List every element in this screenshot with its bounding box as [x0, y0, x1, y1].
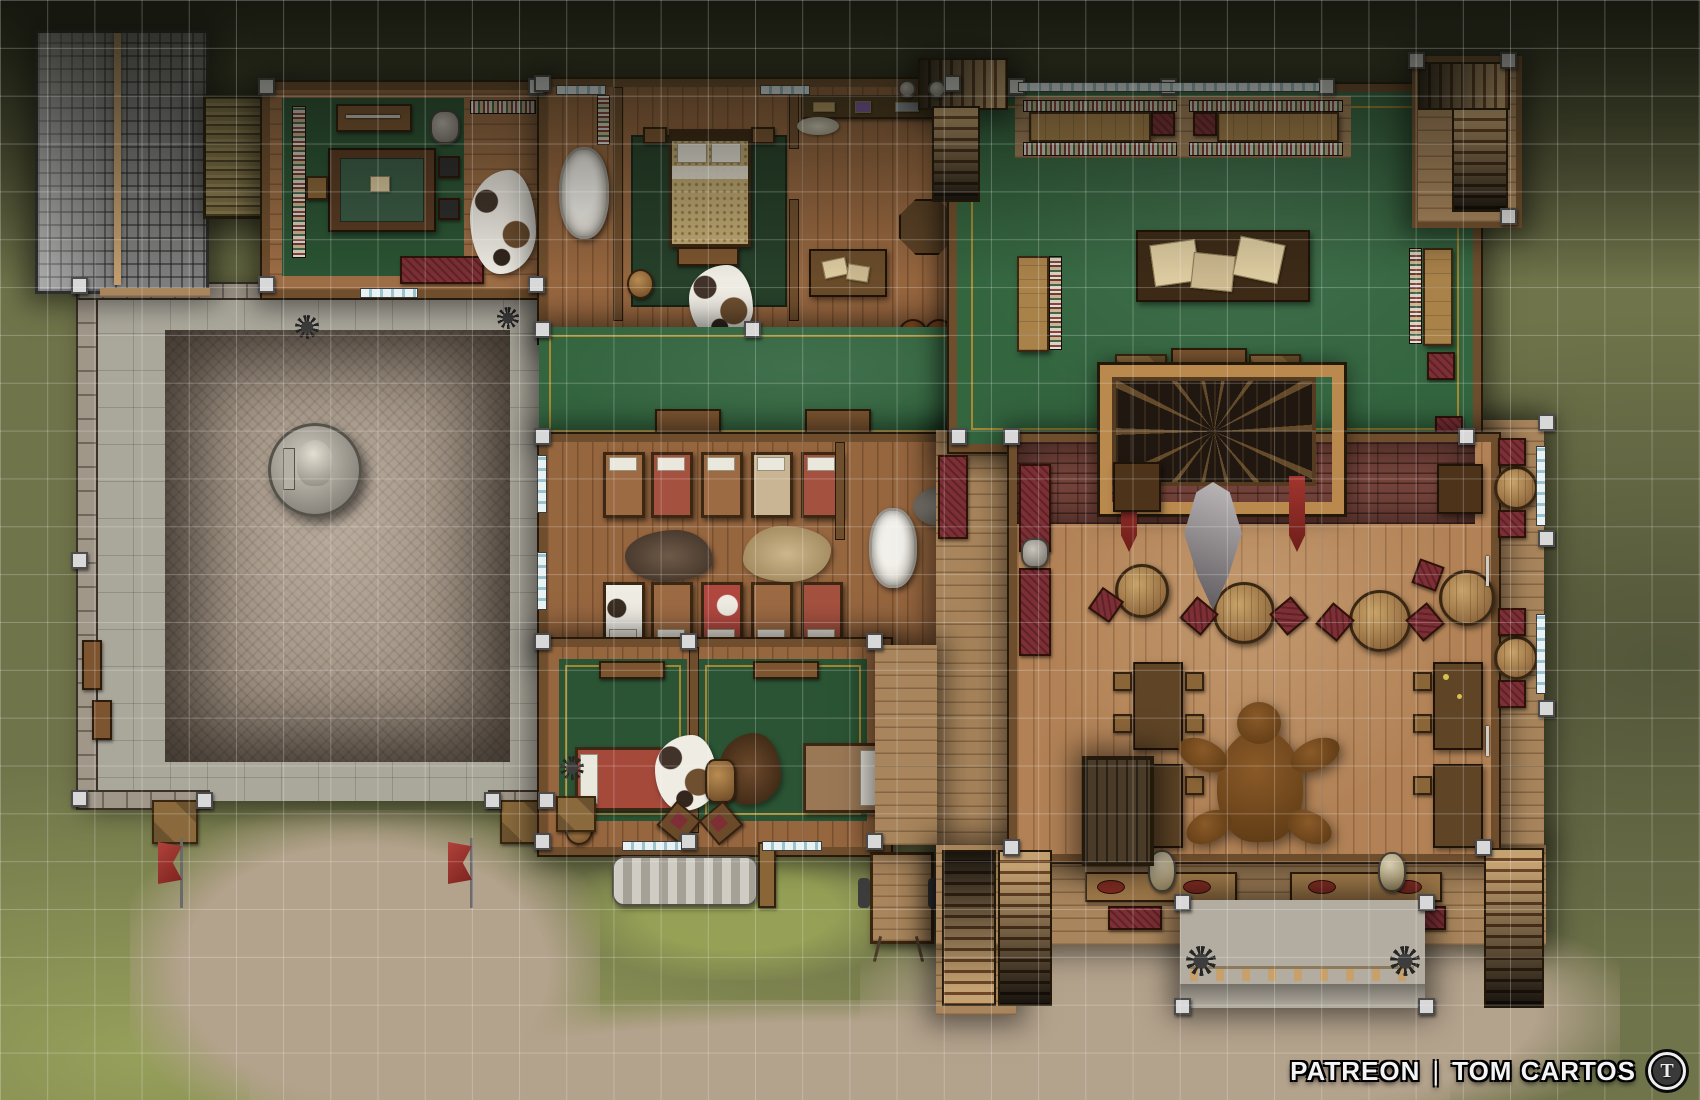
pillar [1538, 700, 1555, 717]
window [1536, 446, 1546, 526]
sword-display-case [336, 104, 412, 132]
crafting-table [899, 199, 955, 255]
tufted-chair [1427, 352, 1455, 380]
tom-cartos-compass-logo-icon: T [1648, 1052, 1686, 1090]
watermark-platform: PATREON [1290, 1056, 1420, 1087]
wall-bath-nook [835, 442, 845, 540]
statue-figure [297, 440, 333, 486]
training-yard-cobbles [165, 330, 510, 762]
hide-rug [625, 530, 713, 582]
side-couch [1423, 248, 1453, 346]
gate-flag-west [158, 838, 188, 908]
statuette [1378, 852, 1406, 892]
pillar [534, 75, 551, 92]
pillar [950, 428, 967, 445]
staircase-south-east [1484, 848, 1544, 1008]
keg [705, 759, 736, 803]
pillar [1003, 839, 1020, 856]
hallway [539, 327, 1015, 440]
barrel [627, 269, 654, 299]
walkway-couch [938, 455, 968, 539]
mounted-sword-icon [1486, 726, 1489, 756]
watermark-author: TOM CARTOS [1452, 1056, 1636, 1087]
hand-cart [858, 852, 940, 962]
wall-bedroom-workroom [789, 87, 799, 149]
office-bookshelf [292, 106, 306, 258]
antlers [797, 117, 839, 135]
bed-foot-bench [677, 247, 739, 266]
mounted-sword-icon [1486, 556, 1489, 586]
office-desk [328, 148, 436, 232]
map-table [1136, 230, 1310, 302]
staircase-down-west [932, 106, 980, 202]
staircase-down-east [1452, 108, 1508, 212]
pillar [258, 78, 275, 95]
tufted-chair [1498, 438, 1526, 466]
warrior-statue [268, 423, 362, 517]
pillar [1418, 894, 1435, 911]
spiked-flail [497, 307, 519, 329]
pillar [534, 428, 551, 445]
alcove-table [1494, 466, 1538, 510]
alcove-table [1494, 636, 1538, 680]
red-banner [1289, 476, 1305, 552]
library-window-strip [1018, 82, 1320, 92]
dirt-ground-bottom [250, 1000, 1450, 1100]
food-platter [1097, 880, 1125, 894]
pillar [1538, 530, 1555, 547]
pillar [1458, 428, 1475, 445]
pillar [1174, 998, 1191, 1015]
long-table [1433, 662, 1483, 750]
window [622, 841, 682, 851]
desk-chair [306, 176, 328, 200]
pillar [538, 792, 555, 809]
desk-chair [438, 198, 460, 220]
chair [1315, 602, 1354, 641]
pillar [1408, 52, 1425, 69]
shelf [599, 661, 665, 679]
pillar [1418, 998, 1435, 1015]
corner-table [1437, 464, 1483, 514]
wall-bench [1019, 568, 1051, 656]
work-table [809, 249, 887, 297]
window [1536, 614, 1546, 694]
pillar [534, 833, 551, 850]
pillar [196, 792, 213, 809]
spiked-flail [295, 315, 319, 339]
side-table [751, 127, 775, 144]
wall-bath-bedroom [613, 87, 623, 321]
pillar [71, 552, 88, 569]
office-bookshelf [470, 100, 536, 114]
stable-roof [35, 30, 209, 294]
connector-deck [875, 645, 937, 845]
round-table [1349, 590, 1411, 652]
armor-stand [1021, 538, 1049, 568]
step-shadow [1180, 984, 1425, 1008]
pillar [744, 321, 761, 338]
roof-ridge-beam [114, 33, 121, 285]
gate-flag-east [448, 838, 478, 908]
staircase-top-east [1418, 62, 1510, 110]
tufted-chair [1498, 510, 1526, 538]
pillar [71, 790, 88, 807]
battlemap: PATREON | TOM CARTOS T [0, 0, 1700, 1100]
bench [82, 640, 102, 690]
pillar [534, 633, 551, 650]
storage-shed [1082, 756, 1154, 866]
window [762, 841, 822, 851]
bathtub [559, 147, 609, 239]
office-couch [400, 256, 484, 284]
pillar [680, 833, 697, 850]
side-couch [1017, 256, 1049, 352]
weapon-crate [556, 796, 596, 832]
tufted-chair [1498, 680, 1526, 708]
bench [92, 700, 112, 740]
shelf [753, 661, 819, 679]
water-trough [612, 856, 758, 906]
window [537, 552, 547, 610]
spiked-wheel [1390, 946, 1420, 976]
pillar [1003, 428, 1020, 445]
office [262, 82, 550, 298]
well-pump [758, 842, 776, 908]
entrance-steps [1180, 900, 1425, 1008]
chair [1411, 558, 1444, 591]
porch-railing [1190, 966, 1414, 981]
pillar [71, 277, 88, 294]
chimney-pot [898, 80, 916, 98]
chair [1405, 602, 1444, 641]
window [556, 85, 606, 95]
window [760, 85, 810, 95]
side-table [643, 127, 667, 144]
round-table [1213, 582, 1275, 644]
window [537, 455, 547, 513]
tufted-chair [1498, 608, 1526, 636]
desk-chair [438, 156, 460, 178]
pillar [1318, 78, 1335, 95]
bookshelf [1409, 248, 1422, 344]
window [360, 288, 418, 298]
statue-hammer [283, 448, 295, 490]
staircase-south-west-1 [942, 850, 996, 1006]
long-table [1433, 764, 1483, 848]
food-platter [1308, 880, 1336, 894]
pillar [1500, 52, 1517, 69]
pillar [534, 321, 551, 338]
bath-shelf [597, 95, 610, 145]
wall-bedroom-workroom [789, 199, 799, 321]
food-platter [1183, 880, 1211, 894]
spiked-wheel [1186, 946, 1216, 976]
cowhide-rug [470, 170, 536, 274]
master-bed [669, 129, 751, 247]
pillar [866, 633, 883, 650]
hall-side-table [655, 409, 721, 435]
cushion [1193, 112, 1217, 136]
watermark-separator: | [1432, 1056, 1440, 1087]
pillar [944, 75, 961, 92]
reading-nook [1023, 100, 1175, 154]
barracks-bathtub [869, 508, 917, 588]
hide-rug [743, 526, 831, 582]
pillar [1174, 894, 1191, 911]
bench [1171, 348, 1247, 364]
corner-table [1113, 462, 1161, 512]
watermark: PATREON | TOM CARTOS T [1290, 1052, 1686, 1090]
pillar [1475, 839, 1492, 856]
hall-side-table [805, 409, 871, 435]
cushion [1151, 112, 1175, 136]
armor-stand [430, 110, 460, 144]
porch-bench [1108, 906, 1162, 930]
bookshelf [1049, 256, 1062, 350]
bear-skin-rug [1169, 694, 1349, 852]
staircase-south-west-2 [998, 850, 1052, 1006]
pillar [866, 833, 883, 850]
sword-icon [346, 115, 400, 118]
reading-nook [1189, 100, 1341, 154]
pillar [1500, 208, 1517, 225]
barracks [539, 434, 973, 655]
spiked-flail [560, 756, 584, 780]
round-table [1115, 564, 1169, 618]
pillar [528, 276, 545, 293]
pillar [258, 276, 275, 293]
pillar [484, 792, 501, 809]
master-suite [539, 79, 967, 343]
chair [1269, 596, 1308, 635]
pillar [1538, 414, 1555, 431]
pillar [680, 633, 697, 650]
stable-porch-beam [100, 288, 210, 297]
